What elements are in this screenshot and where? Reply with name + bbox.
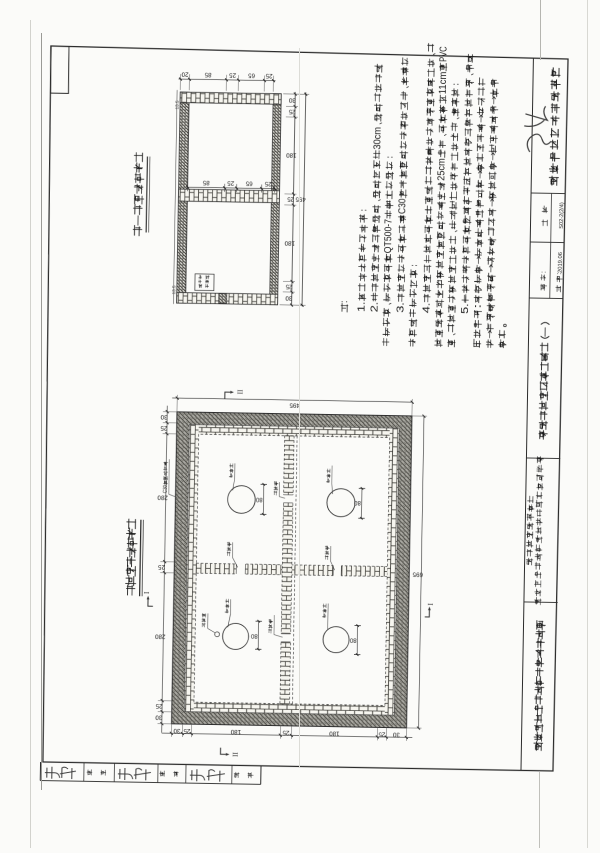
svg-text:30: 30 — [392, 731, 400, 738]
svg-text:30: 30 — [155, 713, 163, 720]
svg-text:4.: 4. — [422, 303, 433, 314]
svg-text:II: II — [232, 751, 240, 757]
svg-text:C30: C30 — [397, 198, 408, 214]
svg-text:30: 30 — [160, 413, 168, 420]
svg-text:25: 25 — [285, 282, 293, 289]
svg-text:30: 30 — [173, 727, 181, 734]
svg-text:13.5: 13.5 — [174, 100, 179, 109]
svg-text:5.: 5. — [460, 303, 471, 314]
svg-text:25: 25 — [288, 107, 296, 114]
svg-text:85: 85 — [202, 179, 210, 186]
svg-text:25: 25 — [160, 424, 168, 431]
svg-text:PVC: PVC — [438, 46, 449, 62]
svg-text:25: 25 — [378, 731, 386, 738]
svg-text:180: 180 — [329, 730, 340, 737]
svg-text:25: 25 — [155, 702, 163, 709]
svg-text:30cm: 30cm — [372, 127, 383, 150]
svg-text:180: 180 — [286, 151, 297, 158]
svg-text:25: 25 — [227, 179, 235, 186]
svg-text:65: 65 — [248, 72, 256, 79]
svg-text:85: 85 — [204, 71, 212, 78]
svg-text:30: 30 — [285, 294, 293, 301]
svg-text:80: 80 — [255, 496, 262, 502]
svg-text:80: 80 — [349, 636, 356, 642]
svg-text:13.5: 13.5 — [171, 285, 176, 294]
svg-text::: : — [473, 303, 484, 309]
svg-text:1.: 1. — [357, 301, 368, 312]
svg-text:20: 20 — [181, 71, 189, 78]
svg-text:80: 80 — [353, 499, 360, 505]
svg-text:2019.06: 2019.06 — [558, 252, 564, 273]
svg-text:25cm: 25cm — [436, 158, 447, 181]
svg-text:280: 280 — [154, 632, 165, 639]
svg-text:3.: 3. — [396, 302, 407, 313]
svg-text:25: 25 — [157, 563, 165, 570]
svg-text:495: 495 — [295, 195, 306, 202]
svg-text:65: 65 — [245, 180, 253, 187]
svg-text:QT500-7: QT500-7 — [383, 219, 395, 253]
svg-text:30: 30 — [288, 96, 296, 103]
svg-text:25: 25 — [264, 180, 272, 187]
svg-text:I: I — [143, 591, 151, 594]
svg-text::: : — [339, 300, 350, 303]
svg-text:25: 25 — [183, 727, 191, 734]
svg-text:180: 180 — [284, 239, 295, 246]
svg-text::: : — [539, 271, 548, 273]
svg-text:25: 25 — [265, 72, 273, 79]
svg-text:25: 25 — [287, 195, 295, 202]
svg-text:I: I — [427, 602, 435, 605]
svg-text:S02-2(2/4): S02-2(2/4) — [559, 202, 565, 229]
svg-text:2.: 2. — [369, 302, 380, 313]
svg-text:280: 280 — [157, 493, 168, 500]
svg-text:11cm: 11cm — [438, 71, 449, 94]
svg-text:695: 695 — [412, 570, 423, 577]
svg-text:II: II — [237, 389, 245, 395]
svg-text:180: 180 — [230, 728, 241, 735]
svg-text:80: 80 — [250, 632, 257, 638]
svg-text:25: 25 — [282, 729, 290, 736]
svg-text:25: 25 — [229, 71, 237, 78]
